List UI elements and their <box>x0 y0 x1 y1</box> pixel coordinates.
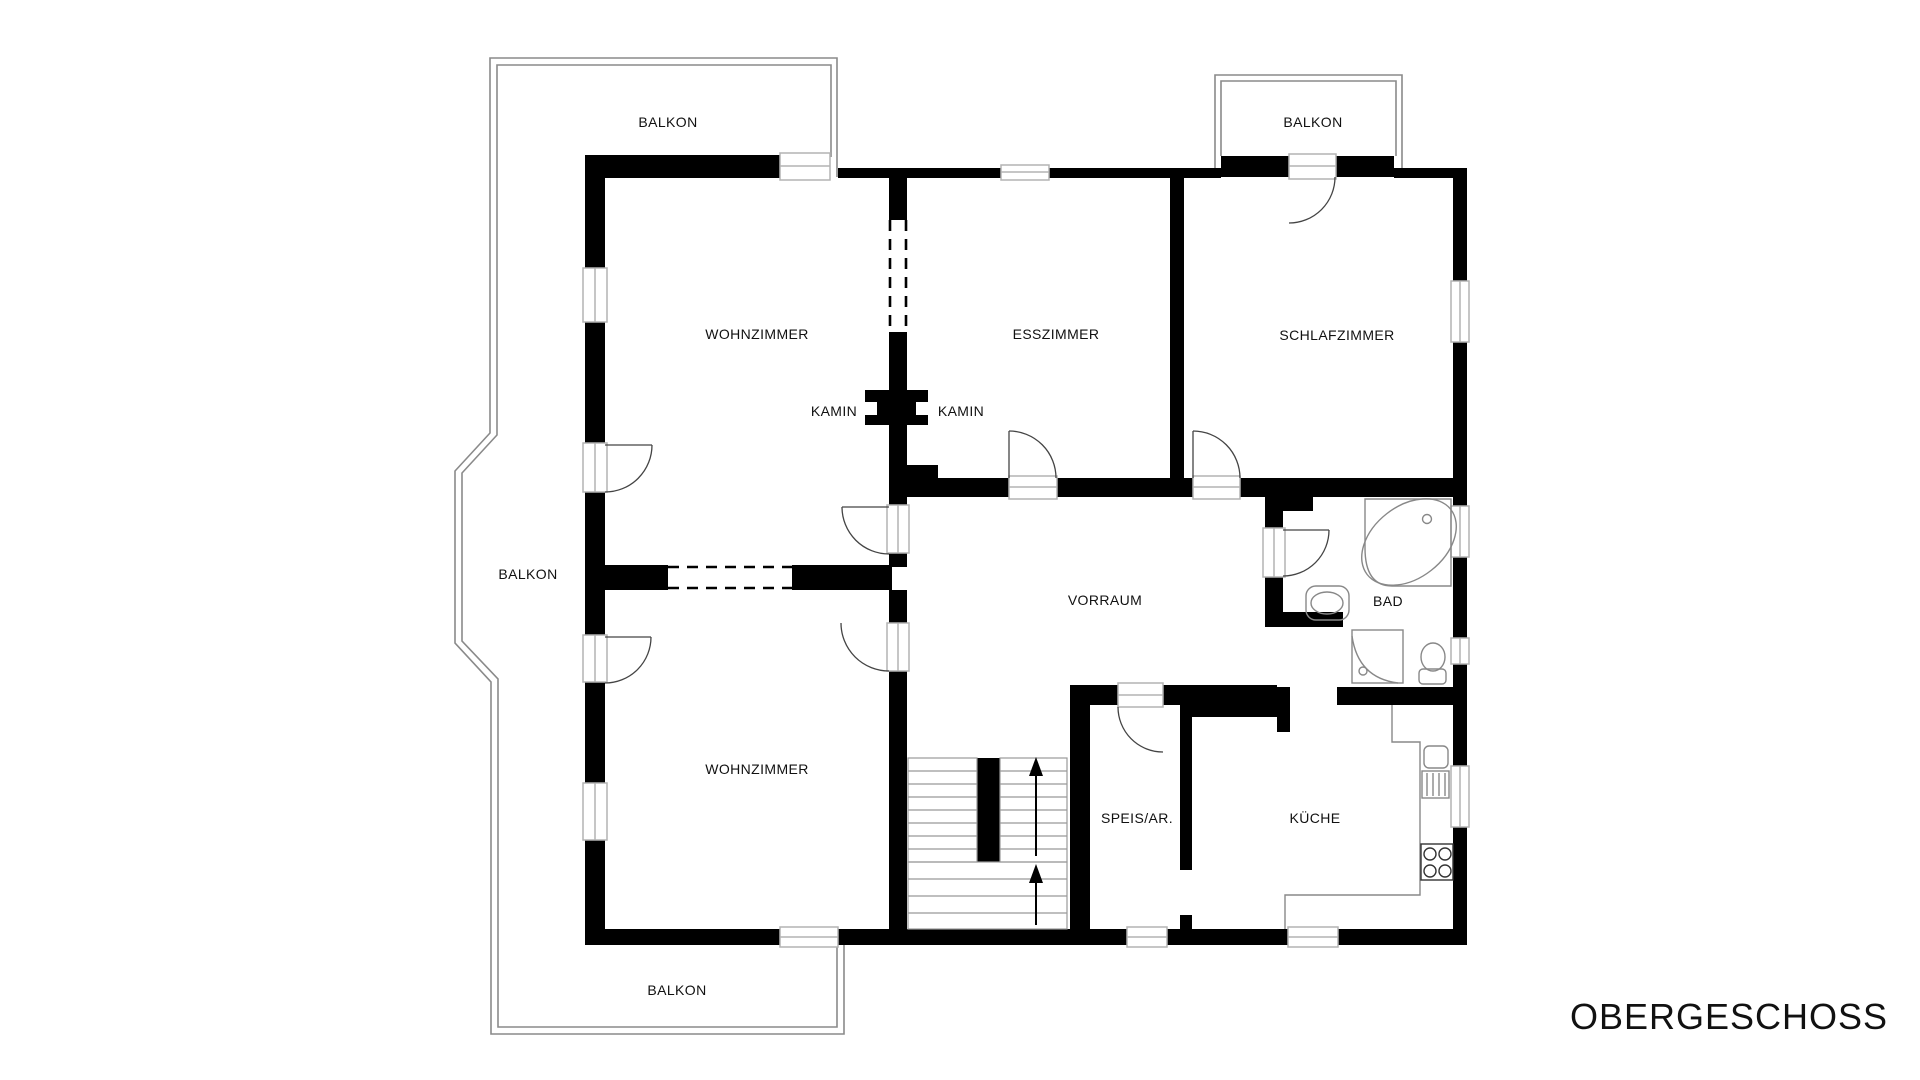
room-label-kamin-left: KAMIN <box>811 403 857 419</box>
window <box>1288 927 1338 947</box>
walls <box>585 155 1467 945</box>
room-label-kamin-right: KAMIN <box>938 403 984 419</box>
window <box>1451 638 1469 664</box>
room-label-vorraum: VORRAUM <box>1068 592 1142 608</box>
window <box>780 153 830 180</box>
room-label-balkon-bottom: BALKON <box>647 982 706 998</box>
room-label-schlafzimmer: SCHLAFZIMMER <box>1279 327 1394 343</box>
window <box>1451 766 1469 827</box>
door-swing <box>605 637 651 683</box>
stove <box>1421 844 1453 880</box>
room-label-balkon-top-left: BALKON <box>638 114 697 130</box>
door-swing <box>841 623 889 671</box>
door-swing <box>842 507 889 554</box>
floor-plan-page: BALKONBALKONWOHNZIMMERESSZIMMERSCHLAFZIM… <box>0 0 1920 1080</box>
room-label-balkon-left: BALKON <box>498 566 557 582</box>
room-label-kueche: KÜCHE <box>1289 810 1340 826</box>
balcony-door-gap <box>1289 154 1336 179</box>
balcony-door-gap <box>780 927 838 947</box>
stair-direction-arrow <box>1029 757 1043 925</box>
door-swing <box>1193 431 1240 478</box>
toilet <box>1419 643 1446 684</box>
balcony-door-gap <box>583 635 607 682</box>
door-gap <box>887 505 909 553</box>
windows-and-door-gaps <box>583 153 1469 947</box>
door-swings <box>605 177 1335 752</box>
door-swing <box>605 445 652 492</box>
room-label-speis-ar: SPEIS/AR. <box>1101 810 1173 826</box>
window <box>1127 927 1167 947</box>
door-gap <box>1009 476 1057 499</box>
room-label-bad: BAD <box>1373 593 1403 609</box>
balcony-outline-wrap-left <box>455 58 844 1034</box>
door-gap <box>1193 476 1240 499</box>
door-swing <box>1283 530 1329 576</box>
room-label-wohnzimmer-bottom: WOHNZIMMER <box>705 761 809 777</box>
wall-openings <box>1178 685 1337 915</box>
room-label-balkon-top-right: BALKON <box>1283 114 1342 130</box>
floor-plan-drawing <box>0 0 1920 1080</box>
plan-title: OBERGESCHOSS <box>1570 996 1888 1038</box>
bathroom-fixtures <box>1306 481 1473 684</box>
window <box>1451 281 1469 342</box>
kitchen-sink <box>1422 746 1449 798</box>
window <box>583 268 607 322</box>
door-swing <box>1289 177 1335 223</box>
room-label-wohnzimmer-top: WOHNZIMMER <box>705 326 809 342</box>
door-swing <box>1009 431 1056 478</box>
window <box>1001 165 1049 180</box>
door-gap <box>1118 683 1163 707</box>
door-gap <box>1263 528 1285 577</box>
shower <box>1352 630 1403 683</box>
door-swing <box>1118 707 1163 752</box>
door-gap <box>887 623 909 671</box>
room-label-esszimmer: ESSZIMMER <box>1013 326 1100 342</box>
window <box>583 783 607 840</box>
balcony-door-gap <box>583 443 607 492</box>
